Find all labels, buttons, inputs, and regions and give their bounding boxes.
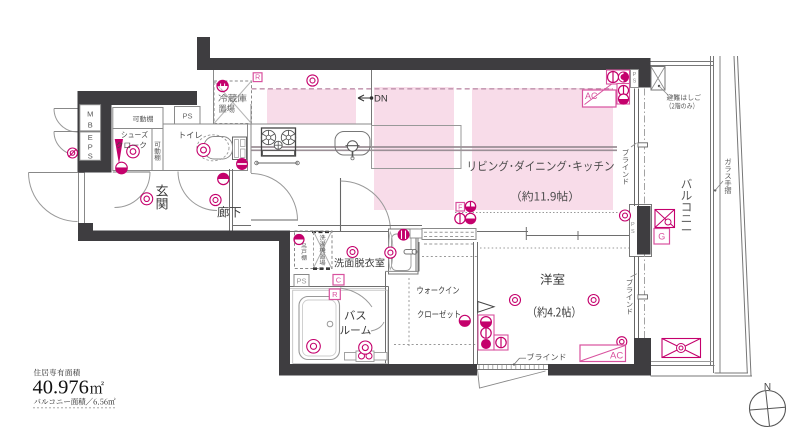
svg-text:E: E (88, 133, 93, 142)
svg-text:C: C (336, 275, 342, 284)
svg-text:S: S (633, 79, 637, 85)
svg-text:R: R (255, 75, 260, 82)
svg-text:PS: PS (296, 277, 306, 286)
svg-text:P: P (633, 72, 637, 78)
svg-text:S: S (631, 229, 635, 235)
svg-text:S: S (88, 152, 93, 161)
svg-text:G: G (658, 231, 665, 241)
svg-text:F: F (458, 204, 462, 211)
svg-text:AC: AC (610, 351, 623, 362)
svg-text:N: N (764, 382, 771, 393)
svg-text:PS: PS (182, 112, 192, 121)
svg-text:R: R (332, 290, 338, 299)
svg-text:B: B (88, 121, 93, 130)
svg-text:P: P (631, 222, 635, 228)
svg-text:P: P (88, 142, 93, 151)
svg-text:40.976: 40.976 (33, 377, 89, 399)
svg-text:M: M (87, 110, 93, 119)
svg-text:DN: DN (374, 94, 388, 105)
